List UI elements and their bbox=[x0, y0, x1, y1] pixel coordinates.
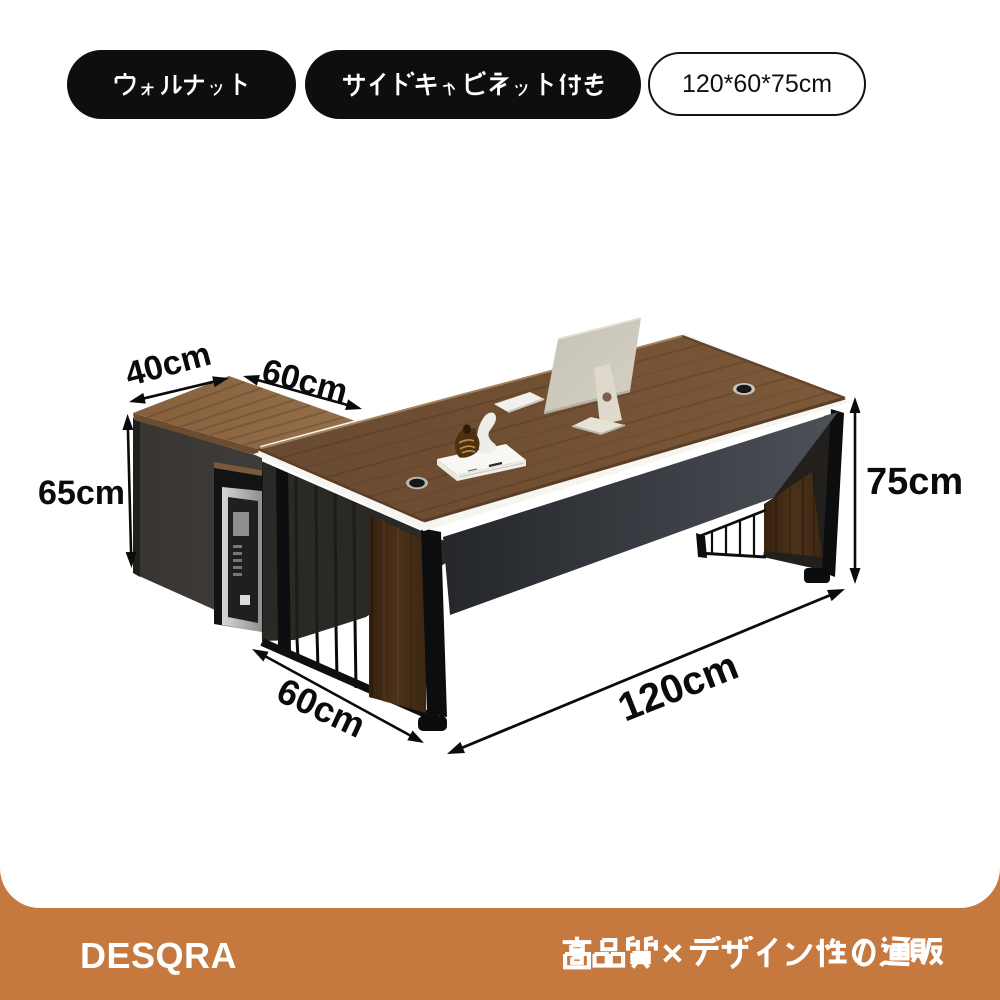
svg-text:65cm: 65cm bbox=[38, 474, 125, 512]
svg-text:75cm: 75cm bbox=[866, 461, 963, 503]
svg-text:120cm: 120cm bbox=[612, 644, 744, 731]
